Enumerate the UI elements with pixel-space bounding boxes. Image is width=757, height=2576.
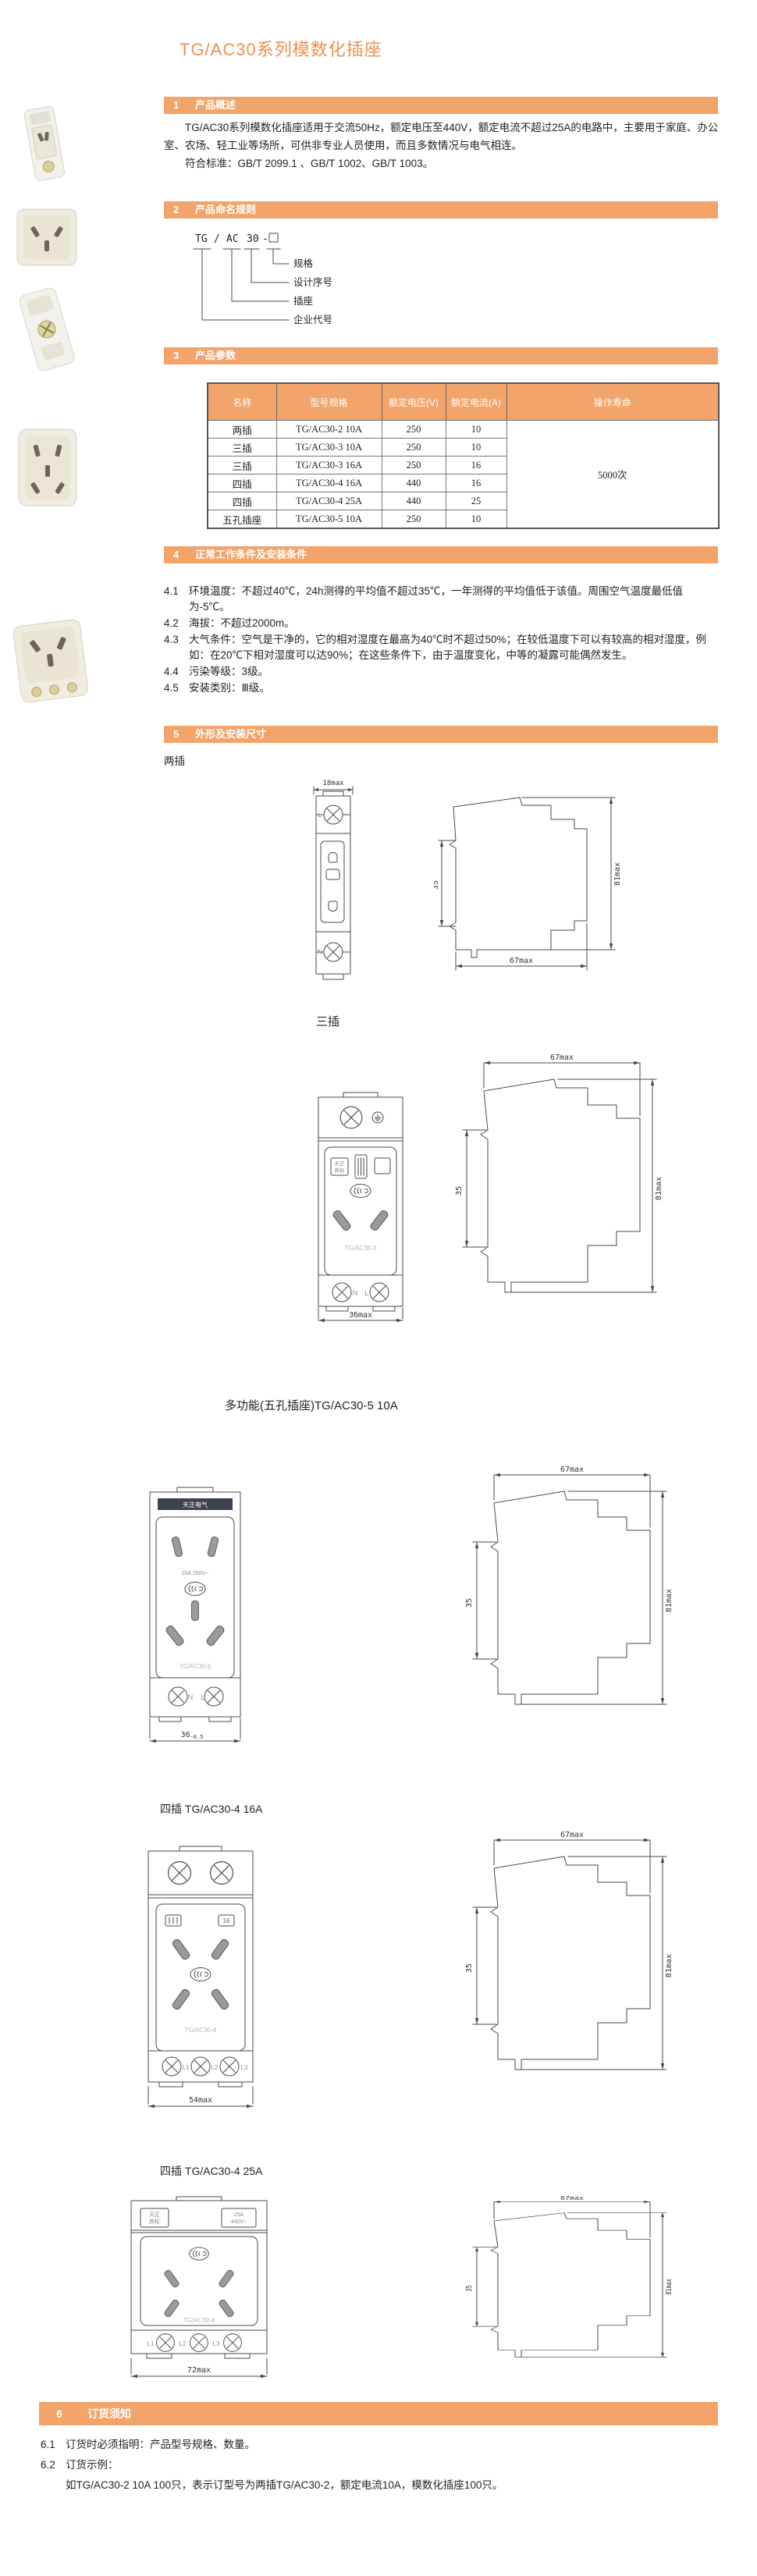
side-view-four-pin-25a (459, 2194, 677, 2374)
section-header-conditions: 4正常工作条件及安装条件 (164, 546, 718, 563)
cell-voltage: 250 (382, 421, 446, 439)
naming-label-company: 企业代号 (293, 314, 332, 325)
cell-current: 10 (446, 439, 506, 457)
product-photo-three-pin-socket (8, 195, 84, 276)
naming-label-spec: 规格 (293, 258, 314, 269)
cell-model: TG/AC30-5 10A (276, 510, 382, 529)
dim-width-label: 36max (349, 1311, 372, 1320)
condition-text: 环境温度：不超过40℃，24h测得的平均值不超过35℃，一年测得的平均值低于该值… (189, 584, 723, 615)
condition-item: 4.3大气条件：空气是干净的，它的相对湿度在最高为40℃时不超过50%；在较低温… (164, 632, 723, 663)
ordering-example: 如TG/AC30-2 10A 100只，表示订型号为两插TG/AC30-2，额定… (41, 2477, 720, 2494)
cell-voltage: 250 (382, 457, 446, 474)
side-view-five-hole (459, 1464, 677, 1729)
product-photo-din-module (5, 284, 89, 375)
cell-current: 16 (446, 474, 506, 492)
section-title: 产品参数 (195, 350, 236, 361)
section-number: 3 (173, 347, 195, 364)
terminal-label-L: L (364, 1289, 368, 1297)
terminal-label-L: L (201, 1693, 204, 1701)
cell-name: 四插 (208, 492, 276, 510)
product-photo-two-pin-module (8, 103, 80, 184)
cell-name: 四插 (208, 474, 276, 492)
model-text: TG/AC30-4 (183, 2317, 215, 2324)
standards-text: 符合标准：GB/T 2099.1 、GB/T 1002、GB/T 1003。 (164, 155, 721, 172)
section-header-ordering: 6订货须知 (39, 2402, 718, 2425)
code-seg-tg: TG (195, 233, 208, 245)
cell-lifespan: 5000次 (506, 421, 719, 529)
code-seg-30: 30 (247, 233, 259, 245)
condition-item: 4.5安装类别：Ⅲ级。 (164, 680, 723, 696)
front-view-two-pin: 18max L N (306, 777, 361, 988)
section-title: 订货须知 (87, 2407, 131, 2420)
section-title: 产品命名规则 (195, 204, 256, 215)
condition-number: 4.1 (164, 584, 189, 615)
terminal-label-L3: L3 (241, 2064, 248, 2071)
cell-current: 25 (446, 492, 506, 510)
col-header-model: 型号规格 (276, 383, 382, 421)
cell-name: 三插 (208, 457, 276, 474)
ordering-list: 6.1 订货时必须指明：产品型号规格、数量。 6.2 订货示例： 如TG/AC3… (41, 2436, 720, 2494)
rating-text: 10A 250V~ (182, 1571, 208, 1576)
side-view-four-pin-16a (459, 1829, 677, 2095)
col-header-name: 名称 (208, 383, 276, 421)
condition-text: 污染等级：3级。 (189, 664, 723, 680)
terminal-label-L1: L1 (147, 2340, 155, 2347)
model-text: TG/AC30-5 (179, 1663, 211, 1670)
dim-width-label: 54max (189, 2096, 212, 2105)
section-header-dimensions: 5外形及安装尺寸 (164, 726, 718, 743)
code-dash: - (262, 233, 268, 245)
product-photo-four-hole-socket (8, 613, 94, 709)
dim-width-label: 18max (322, 780, 344, 787)
page-title: TG/AC30系列模数化插座 (179, 36, 382, 61)
terminal-label-N: N (318, 948, 323, 956)
datasheet-page: 67max 35 81max TG/AC30系列模数化插座 (0, 0, 757, 2576)
section-number: 4 (173, 546, 195, 563)
ordering-item: 6.2 订货示例： (41, 2457, 720, 2474)
code-seg-ac: AC (226, 233, 239, 245)
front-view-four-pin-25a: 天正 商标 25A 440V~ TG/AC30-4 L1 L2 L3 72max (125, 2193, 273, 2388)
code-slash: / (214, 233, 220, 245)
naming-label-design: 设计序号 (293, 276, 332, 288)
terminal-label-N: N (353, 1289, 358, 1297)
section-header-overview: 1产品概述 (164, 97, 718, 114)
front-view-five-hole: 天正电气 10A 250V~ TG/AC30-5 N L 36-0.5 (142, 1481, 248, 1756)
condition-text: 大气条件：空气是干净的，它的相对湿度在最高为40℃时不超过50%；在较低温度下可… (189, 632, 723, 663)
condition-item: 4.1环境温度：不超过40℃，24h测得的平均值不超过35℃，一年测得的平均值低… (164, 584, 723, 615)
rating-line1: 25A (234, 2212, 244, 2218)
brand-box-line1: 天正 (335, 1160, 346, 1167)
cell-name: 三插 (208, 439, 276, 457)
brand-box-line2: 商标 (335, 1167, 346, 1174)
col-header-voltage: 额定电压(V) (382, 383, 446, 421)
section-title: 外形及安装尺寸 (195, 728, 266, 740)
terminal-label-L: L (318, 811, 322, 819)
condition-text: 安装类别：Ⅲ级。 (189, 680, 723, 696)
section-number: 1 (173, 97, 195, 114)
diagram-label-four-pin-25a: 四插 TG/AC30-4 25A (160, 2163, 263, 2179)
table-row: 两插 TG/AC30-2 10A 250 10 5000次 (208, 421, 719, 439)
rating-line2: 440V~ (231, 2219, 247, 2225)
condition-number: 4.3 (164, 632, 189, 663)
terminal-label-L2: L2 (179, 2340, 187, 2347)
brand-bar-text: 天正电气 (183, 1501, 208, 1508)
conditions-list: 4.1环境温度：不超过40℃，24h测得的平均值不超过35℃，一年测得的平均值低… (164, 584, 723, 697)
col-header-current: 额定电流(A) (446, 383, 506, 421)
model-text: TG/AC30-3 (345, 1245, 377, 1252)
condition-text: 海拔：不超过2000m。 (189, 616, 723, 631)
terminal-label-L3: L3 (213, 2340, 220, 2347)
side-view-three-pin (449, 1052, 667, 1317)
terminal-label-N: N (188, 1693, 194, 1701)
condition-item: 4.2海拔：不超过2000m。 (164, 616, 723, 631)
cell-model: TG/AC30-3 10A (276, 439, 382, 457)
cell-model: TG/AC30-3 16A (276, 457, 382, 474)
cell-current: 16 (446, 457, 506, 474)
cell-model: TG/AC30-2 10A (276, 421, 382, 439)
model-text: TG/AC30-4 (185, 2027, 217, 2034)
brand-box-line1: 天正 (149, 2212, 160, 2218)
product-photo-five-hole-socket (8, 421, 86, 512)
condition-number: 4.2 (164, 616, 189, 631)
diagram-label-two-pin: 两插 (164, 752, 185, 768)
cell-name: 两插 (208, 421, 276, 439)
ordering-number: 6.1 (41, 2436, 66, 2453)
side-view-two-pin: 35 81max 67max (434, 790, 637, 985)
cell-voltage: 250 (382, 510, 446, 529)
ordering-text: 订货时必须指明：产品型号规格、数量。 (66, 2436, 720, 2453)
ordering-item: 6.1 订货时必须指明：产品型号规格、数量。 (41, 2436, 720, 2453)
cell-voltage: 440 (382, 474, 446, 492)
ordering-text: 订货示例： (66, 2457, 720, 2474)
diagram-label-five-hole: 多功能(五孔插座)TG/AC30-5 10A (225, 1397, 398, 1413)
section-number: 6 (48, 2402, 87, 2425)
condition-number: 4.4 (164, 664, 189, 680)
dim-height-label: 81max (613, 862, 622, 886)
diagram-label-four-pin-16a: 四插 TG/AC30-4 16A (160, 1801, 263, 1817)
diagram-label-three-pin: 三插 (316, 1013, 339, 1029)
section-header-naming: 2产品命名规则 (164, 201, 718, 219)
code-placeholder-box (269, 233, 278, 242)
current-box-text: 16 (223, 1917, 230, 1924)
cell-voltage: 440 (382, 492, 446, 510)
section-title: 产品概述 (195, 99, 236, 111)
condition-item: 4.4污染等级：3级。 (164, 664, 723, 680)
section-number: 2 (173, 201, 195, 219)
terminal-label-L2: L2 (211, 2064, 219, 2071)
front-view-four-pin-16a: 16 TG/AC30-4 L1 L2 L3 54max (140, 1840, 261, 2123)
section-number: 5 (173, 726, 195, 743)
section-header-params: 3产品参数 (164, 347, 718, 364)
section-title: 正常工作条件及安装条件 (195, 549, 307, 560)
condition-number: 4.5 (164, 680, 189, 696)
cell-current: 10 (446, 510, 506, 529)
overview-paragraphs: TG/AC30系列模数化插座适用于交流50Hz，额定电压至440V，额定电流不超… (164, 119, 721, 172)
col-header-lifespan: 操作寿命 (506, 383, 719, 421)
overview-text: TG/AC30系列模数化插座适用于交流50Hz，额定电压至440V，额定电流不超… (164, 119, 721, 155)
naming-rule-diagram: TG / AC 30 - 规格 设计序号 插座 企业代号 (164, 228, 492, 337)
naming-label-socket: 插座 (293, 295, 313, 307)
ordering-number: 6.2 (41, 2457, 66, 2474)
cell-name: 五孔插座 (208, 510, 276, 529)
cell-voltage: 250 (382, 439, 446, 457)
dim-width-label: 36-0.5 (181, 1731, 204, 1740)
dim-rail-label: 35 (434, 880, 440, 890)
cell-model: TG/AC30-4 16A (276, 474, 382, 492)
params-table: 名称 型号规格 额定电压(V) 额定电流(A) 操作寿命 两插 TG/AC30-… (207, 382, 720, 529)
front-view-three-pin: 天正 商标 TG/AC30-3 N L 36max (311, 1086, 410, 1325)
cell-model: TG/AC30-4 25A (276, 492, 382, 510)
terminal-label-L1: L1 (183, 2064, 190, 2071)
dim-width-label: 72max (187, 2366, 211, 2375)
table-header-row: 名称 型号规格 额定电压(V) 额定电流(A) 操作寿命 (208, 383, 719, 421)
brand-box-line2: 商标 (149, 2218, 160, 2225)
cell-current: 10 (446, 421, 506, 439)
dim-depth-label: 67max (510, 957, 533, 965)
